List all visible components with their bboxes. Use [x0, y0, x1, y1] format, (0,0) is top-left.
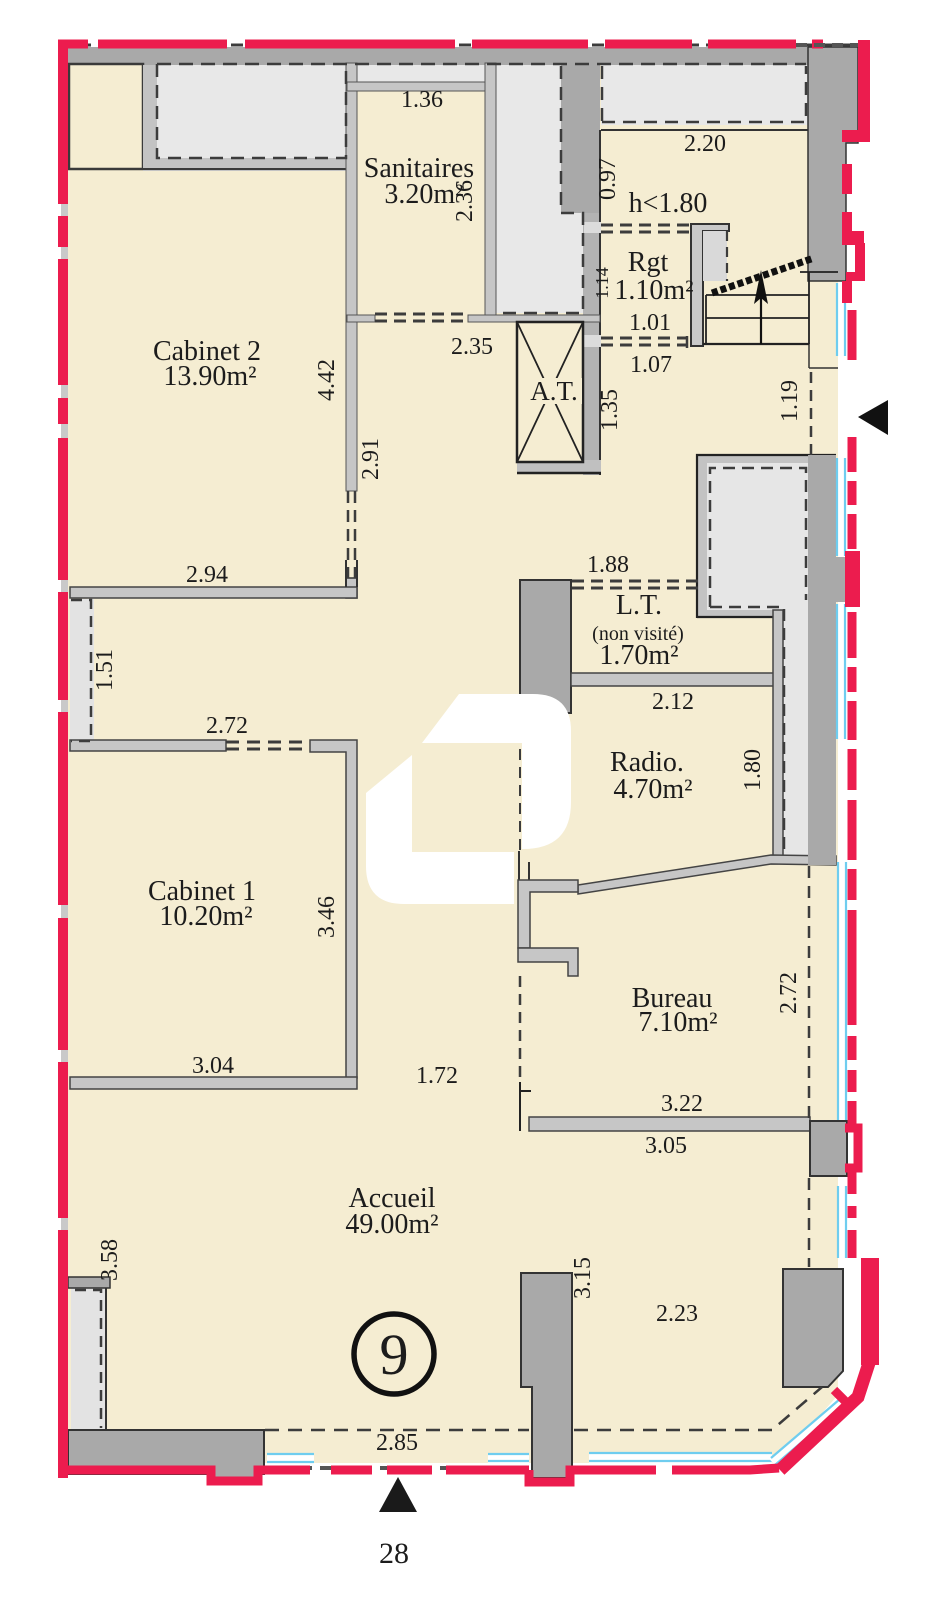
svg-text:2.23: 2.23 [656, 1301, 698, 1327]
svg-text:7.10m²: 7.10m² [638, 1007, 717, 1038]
svg-text:A.T.: A.T. [530, 376, 578, 406]
svg-text:2.36: 2.36 [452, 180, 478, 222]
svg-text:49.00m²: 49.00m² [345, 1209, 438, 1240]
svg-text:3.15: 3.15 [570, 1257, 596, 1299]
svg-text:2.85: 2.85 [376, 1430, 418, 1456]
svg-text:h<1.80: h<1.80 [629, 188, 708, 219]
svg-text:2.20: 2.20 [684, 131, 726, 157]
svg-text:9: 9 [380, 1322, 409, 1387]
svg-text:1.01: 1.01 [629, 310, 671, 336]
svg-text:1.70m²: 1.70m² [599, 640, 678, 671]
svg-text:1.19: 1.19 [777, 380, 803, 422]
svg-text:4.70m²: 4.70m² [613, 774, 692, 805]
svg-text:1.36: 1.36 [401, 87, 443, 113]
svg-text:1.72: 1.72 [416, 1063, 458, 1089]
svg-text:3.58: 3.58 [97, 1239, 123, 1281]
svg-text:0.97: 0.97 [595, 158, 621, 200]
svg-text:3.46: 3.46 [314, 896, 340, 938]
svg-text:2.72: 2.72 [776, 972, 802, 1014]
svg-text:1.07: 1.07 [630, 352, 672, 378]
svg-text:4.42: 4.42 [314, 359, 340, 401]
svg-text:3.05: 3.05 [645, 1133, 687, 1159]
svg-text:10.20m²: 10.20m² [159, 901, 252, 932]
svg-text:1.35: 1.35 [597, 389, 623, 431]
svg-text:1.88: 1.88 [587, 552, 629, 578]
svg-text:2.12: 2.12 [652, 689, 694, 715]
svg-text:2.72: 2.72 [206, 713, 248, 739]
svg-text:Rgt: Rgt [628, 247, 669, 278]
svg-text:1.10m²: 1.10m² [614, 275, 693, 306]
svg-text:1.80: 1.80 [740, 749, 766, 791]
svg-text:2.94: 2.94 [186, 562, 228, 588]
svg-text:2.35: 2.35 [451, 334, 493, 360]
svg-text:28: 28 [379, 1537, 409, 1570]
svg-text:2.91: 2.91 [358, 438, 384, 480]
svg-text:3.22: 3.22 [661, 1091, 703, 1117]
svg-text:L.T.: L.T. [616, 590, 662, 621]
svg-text:1.51: 1.51 [92, 649, 118, 691]
svg-text:13.90m²: 13.90m² [163, 361, 256, 392]
svg-text:1.14: 1.14 [592, 267, 612, 299]
svg-text:3.04: 3.04 [192, 1053, 234, 1079]
